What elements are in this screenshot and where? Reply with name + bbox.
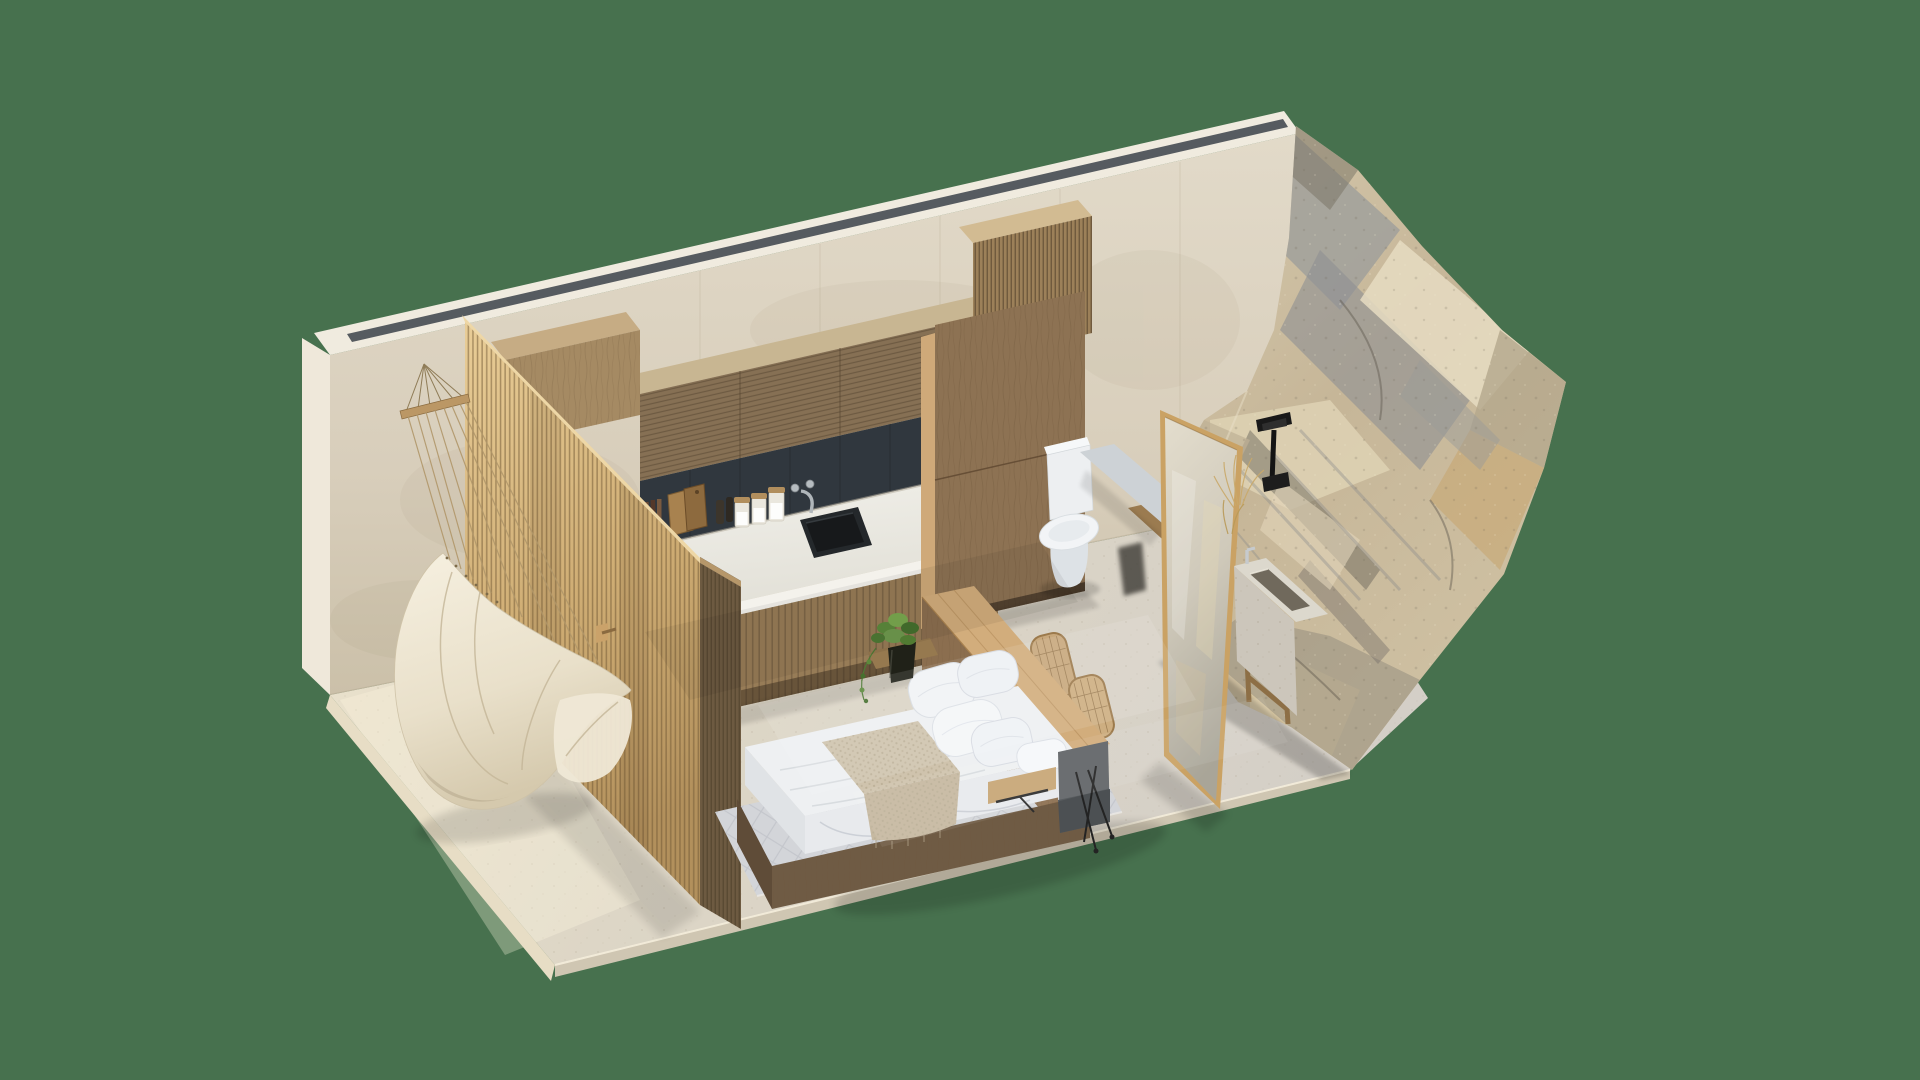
render-canvas: Isometric cutaway render of a compact st… <box>0 0 1920 1080</box>
studio-cutaway-scene <box>0 0 1920 1080</box>
jar <box>768 487 785 521</box>
jar <box>751 493 767 524</box>
back-wall-end-cap <box>302 338 330 695</box>
jar <box>734 497 750 527</box>
